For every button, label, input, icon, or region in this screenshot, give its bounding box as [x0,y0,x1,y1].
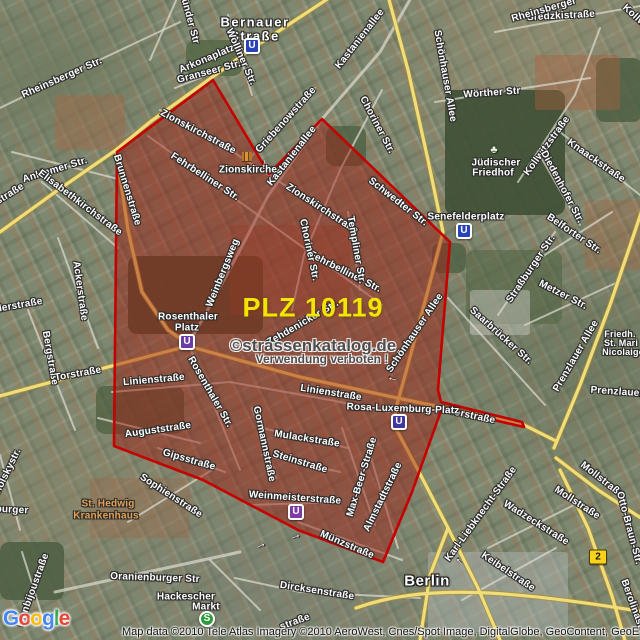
ubahn-station-icon[interactable]: U [288,504,304,520]
map-attribution: Map data ©2010 Tele Atlas Imagery ©2010 … [122,626,640,638]
church-icon [242,152,252,162]
google-logo-letter[interactable]: g [42,607,54,630]
google-logo-letter[interactable]: e [59,607,70,630]
street-label: Senefelderplatz [428,212,505,223]
city-label: Berlin [404,573,450,590]
ubahn-station-icon[interactable]: U [179,334,195,350]
street-label: Krankenhaus [73,511,139,522]
ubahn-station-icon[interactable]: U [244,38,260,54]
street-label: Platz [175,323,199,334]
google-logo-letter[interactable]: o [30,607,42,630]
plz-code-label: PLZ 10119 [242,293,383,324]
ubahn-station-icon[interactable]: U [391,414,407,430]
ubahn-station-icon[interactable]: U [456,223,472,239]
google-logo-letter[interactable]: G [3,607,18,630]
google-logo[interactable]: Google [3,607,69,631]
google-logo-letter[interactable]: o [18,607,30,630]
street-label: St. Hedwig [81,499,134,510]
sbahn-station-icon[interactable]: S [199,611,215,627]
cemetery-icon: ♣ [490,144,497,156]
street-label: Friedhof [472,168,514,179]
street-label: Nicolaige [602,347,640,357]
watermark-line2: Verwendung verboten ! [256,352,389,366]
street-label: burger [0,504,29,517]
oneway-arrow-icon: → [258,157,274,171]
street-label: Rosenthaler [158,312,218,323]
map-viewport[interactable]: BernauerStraßeRheinsberger Str.münder St… [0,0,640,640]
route-shield: 2 [589,550,607,565]
